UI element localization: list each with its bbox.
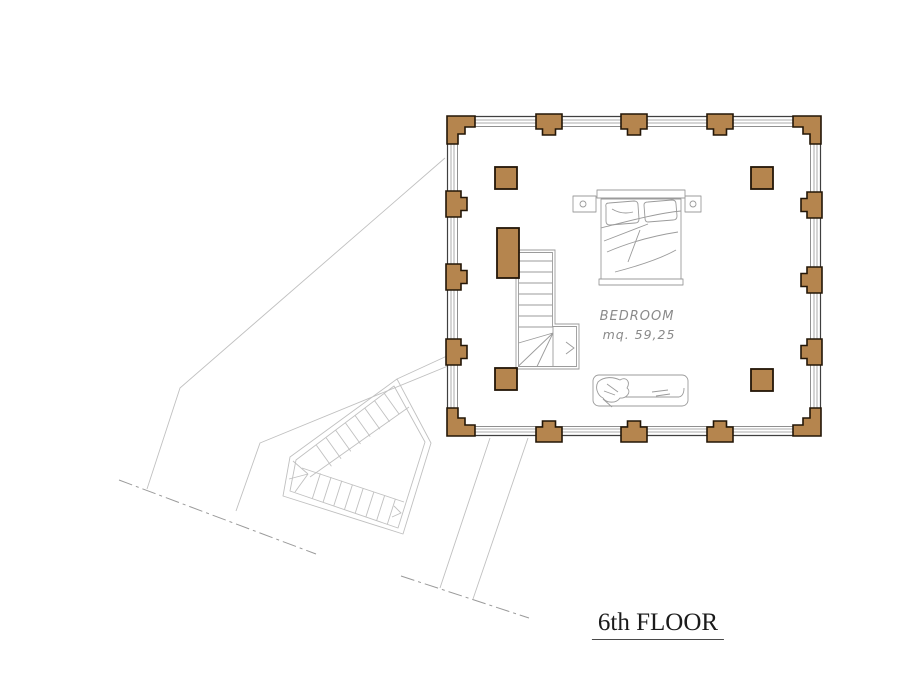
winder-staircase-below [283,379,431,534]
room-area-label: mq. 59,25 [603,327,676,342]
floor-plan-drawing [0,0,900,679]
stair-direction-arrow [392,506,401,517]
interior-column [495,368,517,390]
interior-column [751,167,773,189]
band-line-upper [397,356,447,379]
corridor-line-right [473,438,528,599]
headboard [597,190,685,198]
single-bed [593,375,688,407]
floor-title: 6th FLOOR [592,609,724,640]
corridor-line-left [440,438,490,588]
room-name-label: BEDROOM [600,309,675,324]
nightstand [685,196,701,212]
pillow [644,200,677,222]
stair-pilaster [497,228,519,278]
floor-plan-canvas: BEDROOM mq. 59,25 6th FLOOR [0,0,900,679]
boundary-dash-left [119,480,316,554]
interior-column [495,167,517,189]
footboard [599,279,683,285]
nightstand [573,196,596,212]
boundary-dash-right [401,576,529,618]
interior-column [751,369,773,391]
roof-edge-line [147,158,445,489]
